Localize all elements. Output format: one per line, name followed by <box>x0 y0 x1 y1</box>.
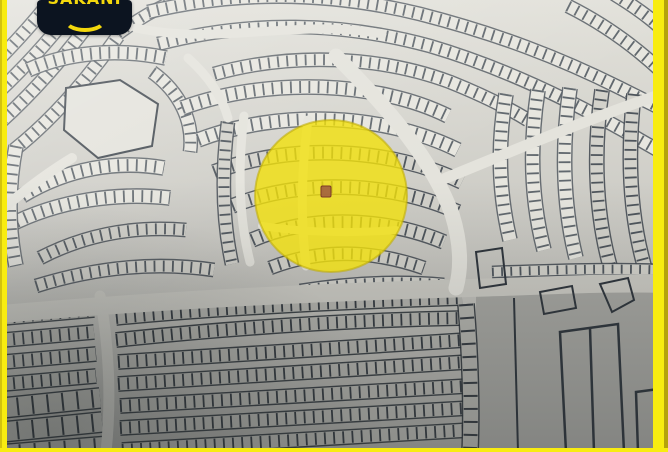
cadastral-map <box>0 0 668 452</box>
frame-left-edge <box>0 0 2 452</box>
map-post-image: SAKANI <box>0 0 668 452</box>
frame-bottom-border <box>0 448 668 452</box>
brand-logo-text: SAKANI <box>47 0 121 7</box>
brand-logo: SAKANI <box>37 0 132 35</box>
frame-right-edge <box>664 0 668 452</box>
location-marker <box>321 186 331 197</box>
smile-arc-icon <box>63 6 107 32</box>
brand-logo-text-clip: SAKANI <box>47 0 121 7</box>
